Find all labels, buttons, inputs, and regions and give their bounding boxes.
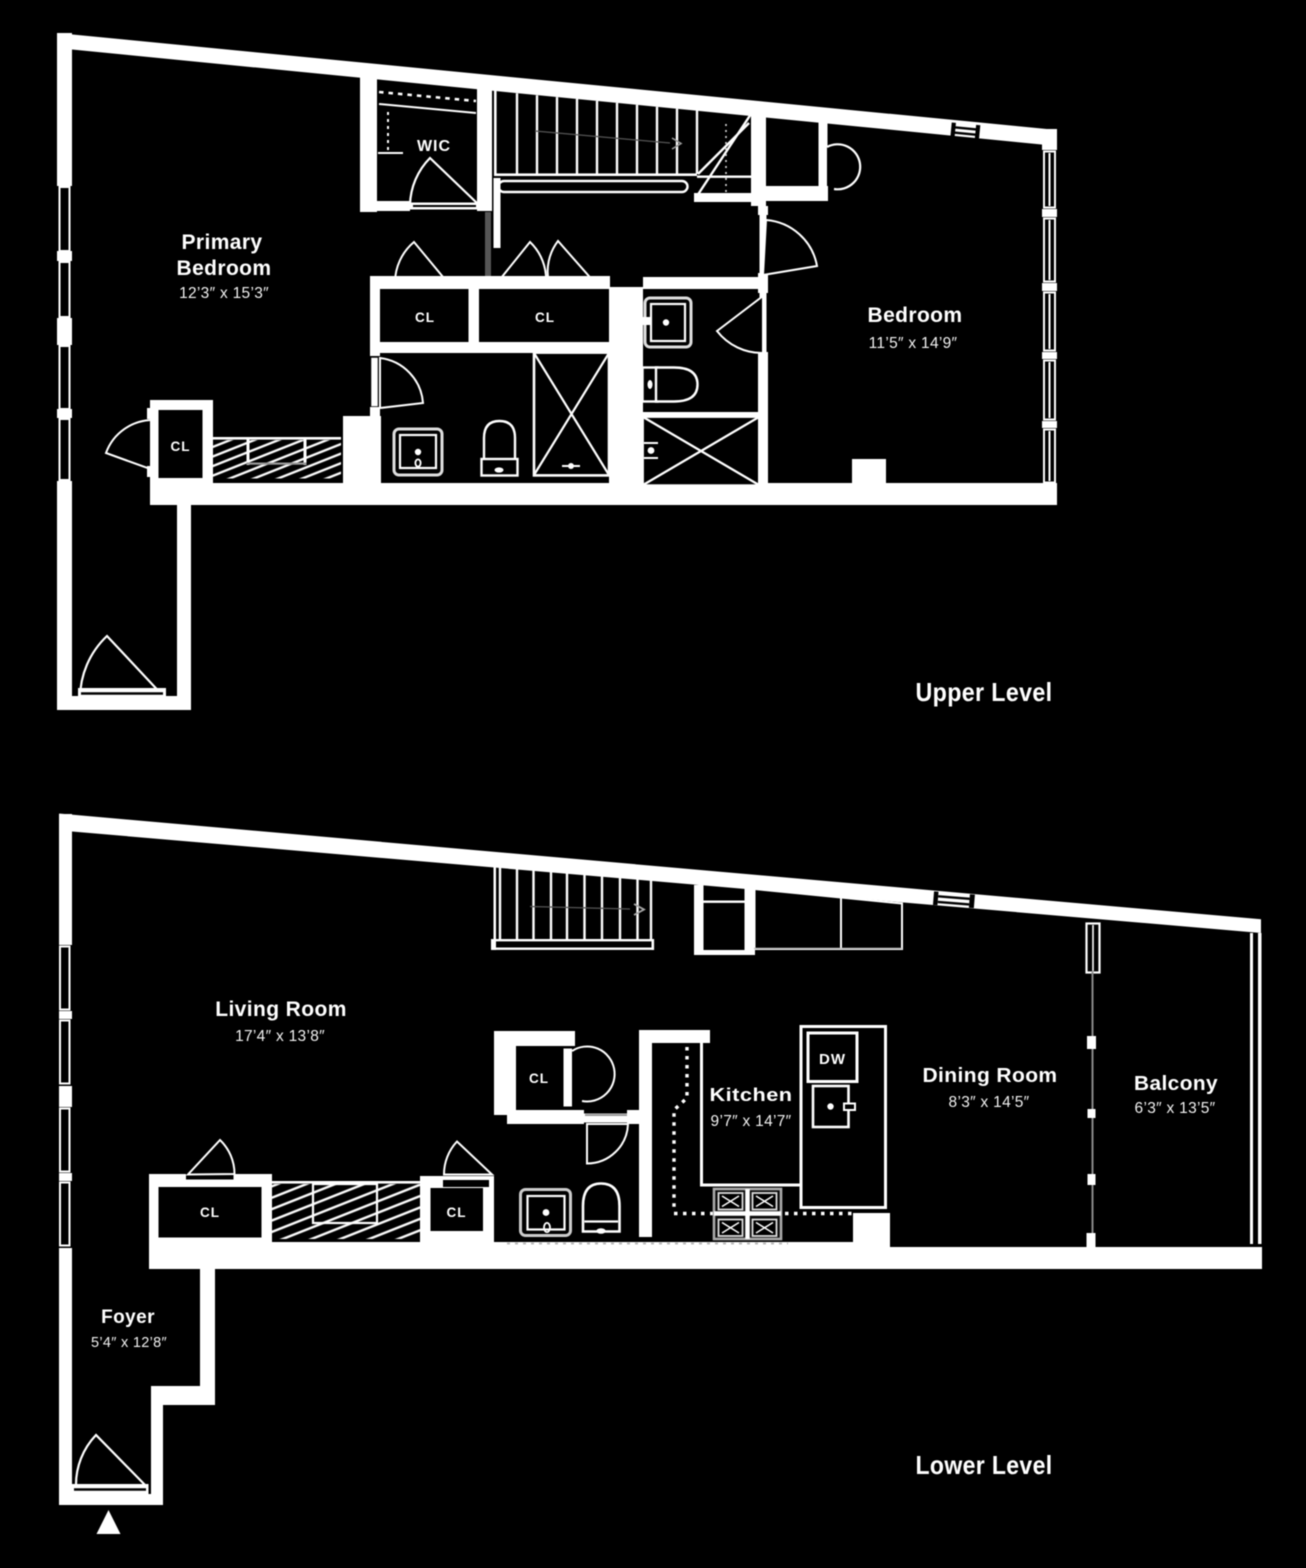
svg-text:Dining Room: Dining Room <box>923 1064 1058 1087</box>
svg-text:Lower Level: Lower Level <box>916 1450 1053 1480</box>
svg-text:Bedroom: Bedroom <box>868 304 963 327</box>
svg-text:WIC: WIC <box>417 138 451 155</box>
svg-text:Foyer: Foyer <box>101 1307 155 1328</box>
svg-text:Bedroom: Bedroom <box>177 257 272 280</box>
svg-text:Primary: Primary <box>181 231 262 254</box>
svg-text:Living Room: Living Room <box>215 998 347 1021</box>
svg-text:12’3″ x 15’3″: 12’3″ x 15’3″ <box>179 285 269 302</box>
svg-text:CL: CL <box>415 310 435 325</box>
svg-text:Balcony: Balcony <box>1134 1073 1218 1095</box>
svg-text:5’4″ x 12’8″: 5’4″ x 12’8″ <box>91 1335 167 1351</box>
svg-text:Upper Level: Upper Level <box>916 677 1053 707</box>
svg-text:11’5″ x 14’9″: 11’5″ x 14’9″ <box>869 335 958 352</box>
svg-text:Kitchen: Kitchen <box>710 1085 793 1105</box>
svg-text:CL: CL <box>171 439 191 454</box>
svg-text:CL: CL <box>535 310 555 325</box>
svg-text:9’7″ x 14’7″: 9’7″ x 14’7″ <box>711 1113 792 1130</box>
svg-text:DW: DW <box>819 1051 846 1068</box>
svg-text:CL: CL <box>529 1071 549 1086</box>
svg-text:CL: CL <box>447 1205 467 1220</box>
svg-text:CL: CL <box>200 1205 220 1220</box>
svg-text:17’4″ x 13’8″: 17’4″ x 13’8″ <box>235 1028 325 1045</box>
svg-text:8’3″ x 14’5″: 8’3″ x 14’5″ <box>949 1094 1030 1111</box>
svg-text:6’3″ x 13’5″: 6’3″ x 13’5″ <box>1135 1100 1216 1117</box>
